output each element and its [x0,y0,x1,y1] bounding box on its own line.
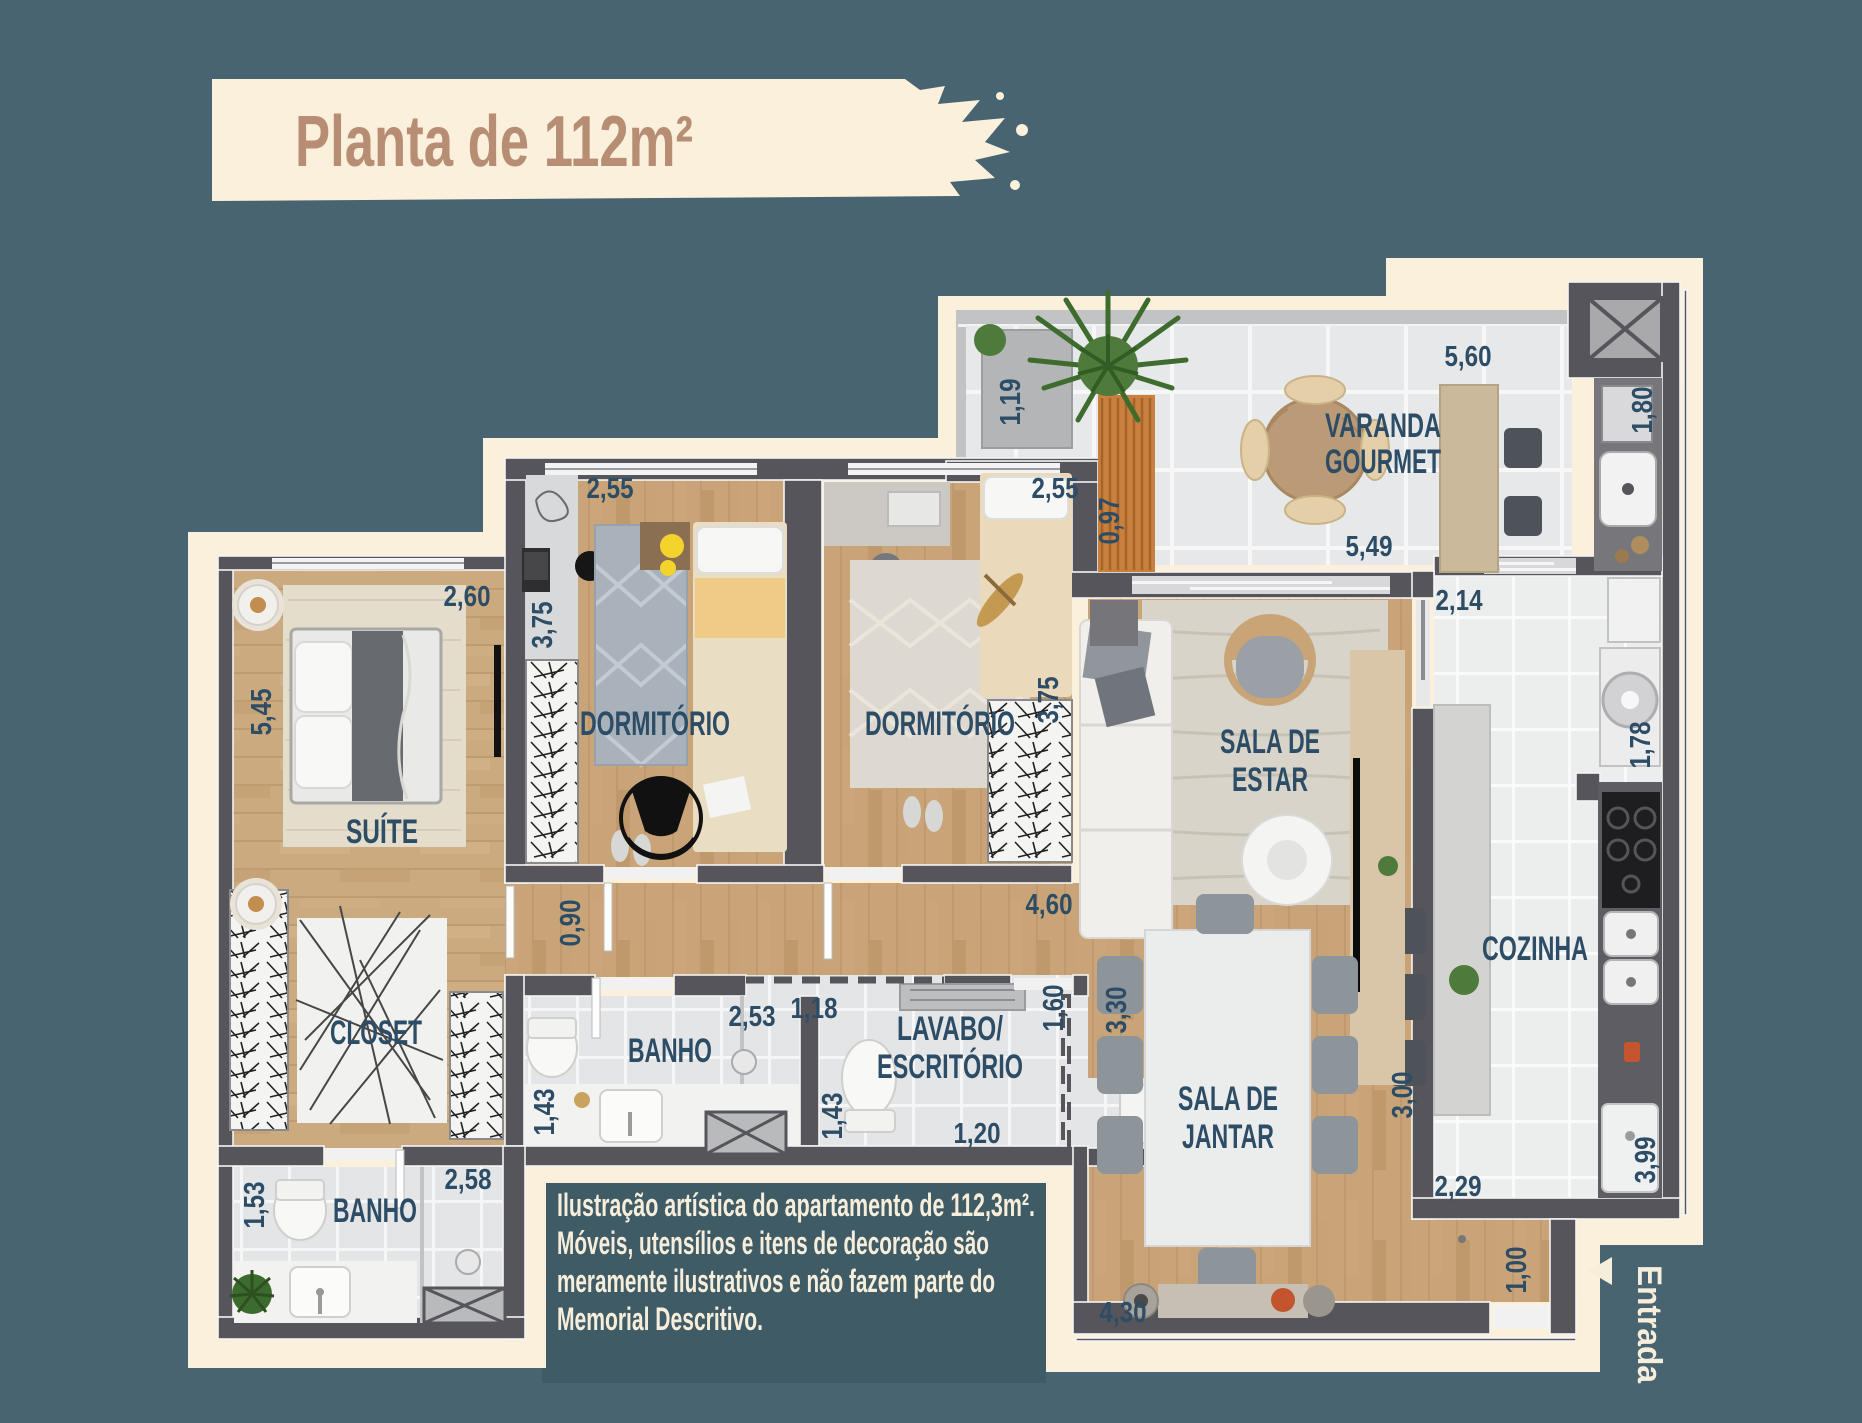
svg-text:SUÍTE: SUÍTE [346,813,418,851]
svg-text:5,45: 5,45 [246,689,278,736]
svg-text:Móveis, utensílios e itens de: Móveis, utensílios e itens de decoração … [557,1225,989,1261]
svg-text:5,60: 5,60 [1445,341,1492,373]
svg-text:0,90: 0,90 [555,900,587,947]
svg-text:3,99: 3,99 [1630,1137,1662,1184]
svg-text:1,53: 1,53 [239,1182,271,1229]
svg-text:1,43: 1,43 [529,1089,561,1136]
svg-text:GOURMET: GOURMET [1325,443,1441,481]
svg-text:Planta de 112m²: Planta de 112m² [295,102,693,182]
svg-text:ESTAR: ESTAR [1232,761,1308,799]
svg-text:Entrada: Entrada [1630,1265,1668,1384]
svg-text:Memorial Descritivo.: Memorial Descritivo. [557,1301,763,1337]
svg-text:2,29: 2,29 [1435,1171,1482,1203]
svg-text:SALA DE: SALA DE [1178,1080,1278,1118]
svg-text:2,55: 2,55 [1032,473,1079,505]
svg-text:2,60: 2,60 [444,581,491,613]
svg-text:2,14: 2,14 [1436,585,1483,617]
svg-text:3,75: 3,75 [1033,677,1065,724]
svg-text:1,19: 1,19 [995,379,1027,426]
svg-text:COZINHA: COZINHA [1482,930,1588,968]
svg-text:2,55: 2,55 [587,473,634,505]
svg-text:SALA DE: SALA DE [1220,723,1320,761]
svg-text:0,97: 0,97 [1094,498,1126,545]
svg-text:1,18: 1,18 [791,993,838,1025]
svg-text:1,43: 1,43 [817,1093,849,1140]
svg-text:Ilustração artística do aparta: Ilustração artística do apartamento de 1… [557,1187,1035,1223]
svg-text:4,30: 4,30 [1100,1297,1147,1329]
svg-text:5,49: 5,49 [1346,531,1393,563]
svg-text:1,00: 1,00 [1501,1247,1533,1294]
svg-text:2,58: 2,58 [445,1164,492,1196]
svg-text:DORMITÓRIO: DORMITÓRIO [580,705,730,743]
svg-text:1,20: 1,20 [954,1118,1001,1150]
svg-text:meramente ilustrativos e não f: meramente ilustrativos e não fazem parte… [557,1263,995,1299]
svg-text:JANTAR: JANTAR [1182,1118,1274,1156]
svg-text:VARANDA: VARANDA [1325,407,1441,445]
svg-text:LAVABO/: LAVABO/ [897,1010,1003,1048]
svg-text:BANHO: BANHO [628,1032,712,1070]
svg-text:1,60: 1,60 [1038,985,1070,1032]
svg-text:1,80: 1,80 [1627,387,1659,434]
svg-text:2,53: 2,53 [729,1001,776,1033]
svg-text:BANHO: BANHO [333,1192,417,1230]
svg-text:ESCRITÓRIO: ESCRITÓRIO [877,1048,1023,1086]
svg-text:DORMITÓRIO: DORMITÓRIO [865,705,1015,743]
svg-text:3,75: 3,75 [527,602,559,649]
svg-text:3,00: 3,00 [1387,1072,1419,1119]
svg-text:4,60: 4,60 [1026,889,1073,921]
svg-text:CLOSET: CLOSET [330,1014,422,1052]
svg-text:1,78: 1,78 [1625,722,1657,769]
svg-text:3,30: 3,30 [1101,987,1133,1034]
